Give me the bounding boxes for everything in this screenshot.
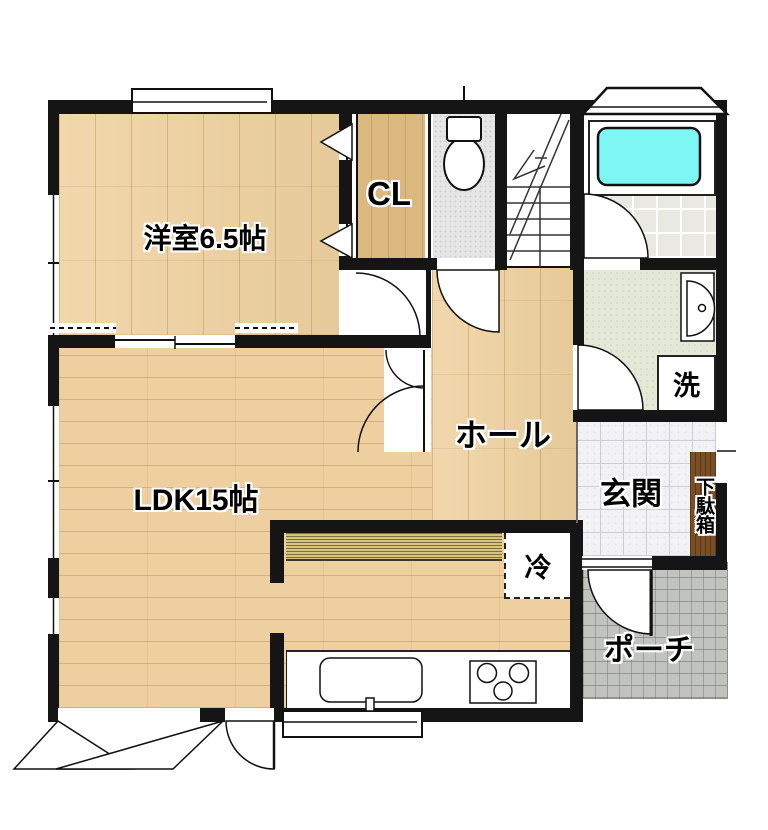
floor-stairs [507, 114, 570, 267]
wall-toilet-stairs [495, 114, 507, 270]
ldk-hall-door-opening [384, 348, 431, 452]
entrance-door-opening [582, 556, 652, 570]
washroom-door-opening [573, 345, 584, 410]
floor-bathroom [584, 192, 716, 258]
toilet-door-opening [437, 258, 495, 270]
wall-entrance-porch-left [573, 556, 582, 570]
refrigerator-label: 冷 [525, 546, 552, 585]
wall-closet-toilet [428, 114, 431, 258]
label-hall: ホール [455, 410, 551, 456]
label-closet: CL [367, 175, 411, 213]
window-ldk-left [48, 406, 59, 558]
wall-washroom-bottom [573, 410, 727, 422]
terrace-door-swings [14, 721, 274, 769]
shoe-cabinet-label: 下駄箱 [694, 477, 713, 534]
window-western-top [131, 88, 273, 114]
western-room-door-area [341, 270, 428, 336]
kitchen-bar-counter [286, 533, 502, 561]
laundry-label: 洗 [673, 364, 700, 403]
wall-western-closet-1 [339, 114, 352, 130]
kitchen-sink-counter [286, 650, 571, 711]
wall-western-closet-2 [339, 160, 352, 224]
floor-hall [432, 267, 576, 523]
label-porch: ポーチ [604, 625, 694, 669]
wall-kitchen-left-upper [270, 520, 284, 583]
label-western-room: 洋室6.5帖 [144, 217, 267, 257]
floor-toilet [433, 114, 495, 258]
wall-stairs-bathroom [570, 100, 584, 270]
bathtub-deck-frame [588, 120, 716, 196]
wall-kitchen-left-lower [270, 633, 284, 710]
label-ldk: LDK15帖 [133, 475, 258, 519]
sliding-door-opening [115, 335, 235, 348]
refrigerator-space: 冷 [504, 533, 570, 599]
wall-hall-kitchen [270, 520, 583, 533]
ldk-exit-door-opening [225, 708, 274, 722]
wall-bath-washroom [640, 258, 716, 270]
bathroom-door-opening [584, 258, 640, 270]
wall-hall-jamb [426, 267, 431, 352]
wall-kitchen-entrance [570, 523, 583, 710]
wall-right [716, 100, 727, 562]
washing-machine-pan: 洗 [657, 355, 716, 412]
window-kitchen-south [282, 710, 423, 738]
floor-plan: 下駄箱 洗 冷 [0, 0, 768, 830]
window-entrance-right [716, 422, 727, 483]
shoe-cabinet: 下駄箱 [690, 452, 717, 558]
label-entrance: 玄関 [600, 469, 662, 514]
window-western-left [48, 195, 59, 335]
window-ldk-left-small [48, 598, 59, 634]
wall-entrance-porch-right [652, 556, 727, 570]
terrace-door-opening [58, 708, 200, 722]
